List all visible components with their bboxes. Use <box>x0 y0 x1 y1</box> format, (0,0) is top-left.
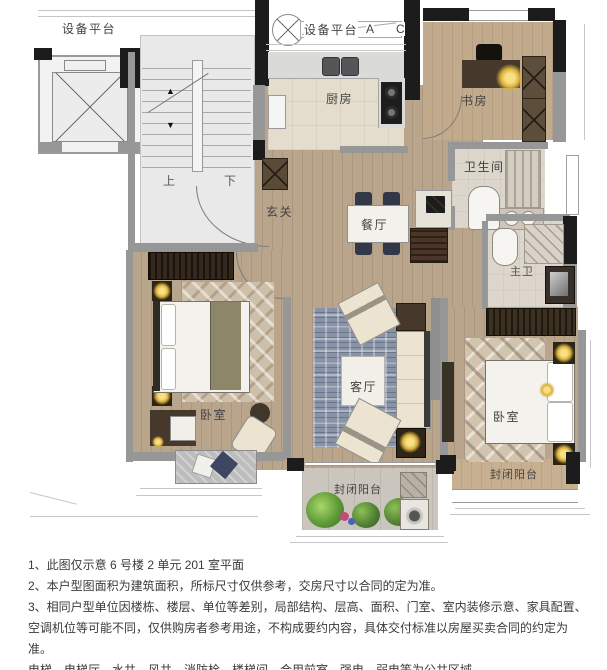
bedroom-left-label: 卧室 <box>200 406 227 423</box>
sofa-back <box>424 331 430 427</box>
side-table-top <box>396 303 426 331</box>
wall <box>448 149 455 181</box>
facade-line <box>290 542 448 543</box>
bed-left-headboard <box>153 301 160 391</box>
wall <box>128 52 135 250</box>
kitchen-sink-right <box>341 57 359 76</box>
nightstand-lamp <box>554 343 574 363</box>
bay-window-line <box>140 488 262 489</box>
plant <box>352 502 380 528</box>
elevator-car-x <box>52 72 128 142</box>
bedroom-right-wardrobe <box>486 308 576 336</box>
kitchen-label: 厨房 <box>326 90 353 107</box>
master-toilet <box>492 228 518 266</box>
master-shower <box>524 224 564 264</box>
wall <box>255 0 269 86</box>
wall <box>563 216 577 264</box>
wall <box>482 221 488 309</box>
bedroom-left-wardrobe <box>148 252 234 280</box>
dining-label: 餐厅 <box>361 216 388 233</box>
note-line-3: 3、相同户型单位因楼栋、楼层、单位等差别，局部结构、层高、面积、门室、室内装修示… <box>28 597 588 618</box>
study-lamp <box>496 64 524 92</box>
note-line-4: 空调机位等可能不同，仅供购房者参考用途，不构成要约内容，具体交付标准以房屋买卖合… <box>28 618 588 660</box>
study-label: 书房 <box>461 92 488 109</box>
desk-gold-decor <box>152 436 164 448</box>
entry-label: 玄关 <box>266 203 293 220</box>
pillow <box>161 348 176 390</box>
wall <box>34 48 52 60</box>
note-line-5: 电梯、电梯厅、水井、风井、消防栓、楼梯间、合用前室、强电、弱电等为公共区域。 <box>28 660 588 670</box>
wall <box>553 20 566 72</box>
balcony-sliding-door <box>305 462 435 466</box>
sideboard-sink <box>426 196 445 213</box>
wall <box>436 460 454 474</box>
wall <box>448 142 548 149</box>
study-window <box>469 10 528 21</box>
bathroom-window <box>566 155 579 215</box>
bedroom-right-label: 卧室 <box>493 408 520 425</box>
flower-blue <box>348 518 355 525</box>
facade-line <box>296 536 444 537</box>
wall <box>38 142 62 152</box>
stair-arrow-up-icon: ▲ <box>166 86 175 96</box>
nightstand-lamp <box>153 282 171 300</box>
wall <box>283 297 291 459</box>
wall <box>287 458 304 471</box>
plant <box>306 492 344 528</box>
living-label: 客厅 <box>350 378 377 395</box>
stairs-up-label: 上 <box>163 172 177 189</box>
study-wardrobe <box>522 56 546 100</box>
study-wardrobe <box>522 98 546 142</box>
wall <box>423 8 469 21</box>
wall <box>553 72 566 142</box>
side-table-gold-decor <box>399 431 421 453</box>
bathroom-label: 卫生间 <box>464 158 505 175</box>
equipment-platform-left-label: 设备平台 <box>62 20 116 37</box>
balcony-sink <box>400 472 427 498</box>
floorplan-screenshot: 设备平台 ▲ ▼ 上 下 设备平台 A C 厨房 书房 <box>0 0 607 670</box>
elevator-door <box>64 60 106 71</box>
washing-machine <box>400 499 429 530</box>
equipment-platform-top-label: 设备平台 <box>304 21 358 38</box>
wall <box>126 250 133 462</box>
facade-line <box>30 516 258 517</box>
facade-line <box>590 340 591 468</box>
wall <box>253 85 265 140</box>
marker-c-label: C <box>396 22 405 36</box>
bay-window-line <box>136 495 262 496</box>
shower-area <box>505 150 541 208</box>
note-line-1: 1、此图仅示意 6 号楼 2 单元 201 室平面 <box>28 555 588 576</box>
balcony-bottom-label: 封闭阳台 <box>334 481 382 497</box>
disclaimer-notes: 1、此图仅示意 6 号楼 2 单元 201 室平面 2、本户型图面积为建筑面积，… <box>28 555 588 670</box>
kitchen-sink-left <box>322 57 340 76</box>
wall <box>566 452 580 484</box>
facade-line <box>38 10 255 11</box>
bed-gold-decor <box>539 382 555 398</box>
wall <box>253 140 265 160</box>
bedroom-right-console <box>442 362 454 442</box>
master-sink-mirror <box>550 272 568 296</box>
marker-a-label: A <box>366 22 374 36</box>
fridge <box>268 95 286 129</box>
desk-chair <box>170 416 196 441</box>
stair-arrow-down-icon: ▼ <box>166 120 175 130</box>
facade-line <box>584 24 585 140</box>
master-bath-label: 主卫 <box>510 263 534 279</box>
note-line-2: 2、本户型图面积为建筑面积，所标尺寸仅供参考，交房尺寸以合同的定为准。 <box>28 576 588 597</box>
pillow <box>547 402 573 442</box>
facade-line <box>455 508 585 509</box>
facade-line <box>266 44 406 45</box>
facade-line <box>266 50 406 51</box>
entry-shoe-cabinet <box>262 158 288 190</box>
balcony-right-label: 封闭阳台 <box>490 466 538 482</box>
pillow <box>161 304 176 346</box>
balcony-right-window <box>452 489 578 503</box>
facade-line <box>38 16 255 17</box>
stove-burner <box>385 86 398 99</box>
facade-line <box>450 514 590 515</box>
wall <box>528 8 555 21</box>
wall <box>578 330 586 462</box>
stove-burner <box>385 106 398 119</box>
bed-left-blanket <box>210 302 241 390</box>
wall <box>404 0 420 100</box>
wall <box>486 214 570 221</box>
wall <box>340 146 408 153</box>
dining-cabinet <box>410 228 448 263</box>
wall <box>132 243 258 252</box>
facade-line <box>30 492 77 505</box>
